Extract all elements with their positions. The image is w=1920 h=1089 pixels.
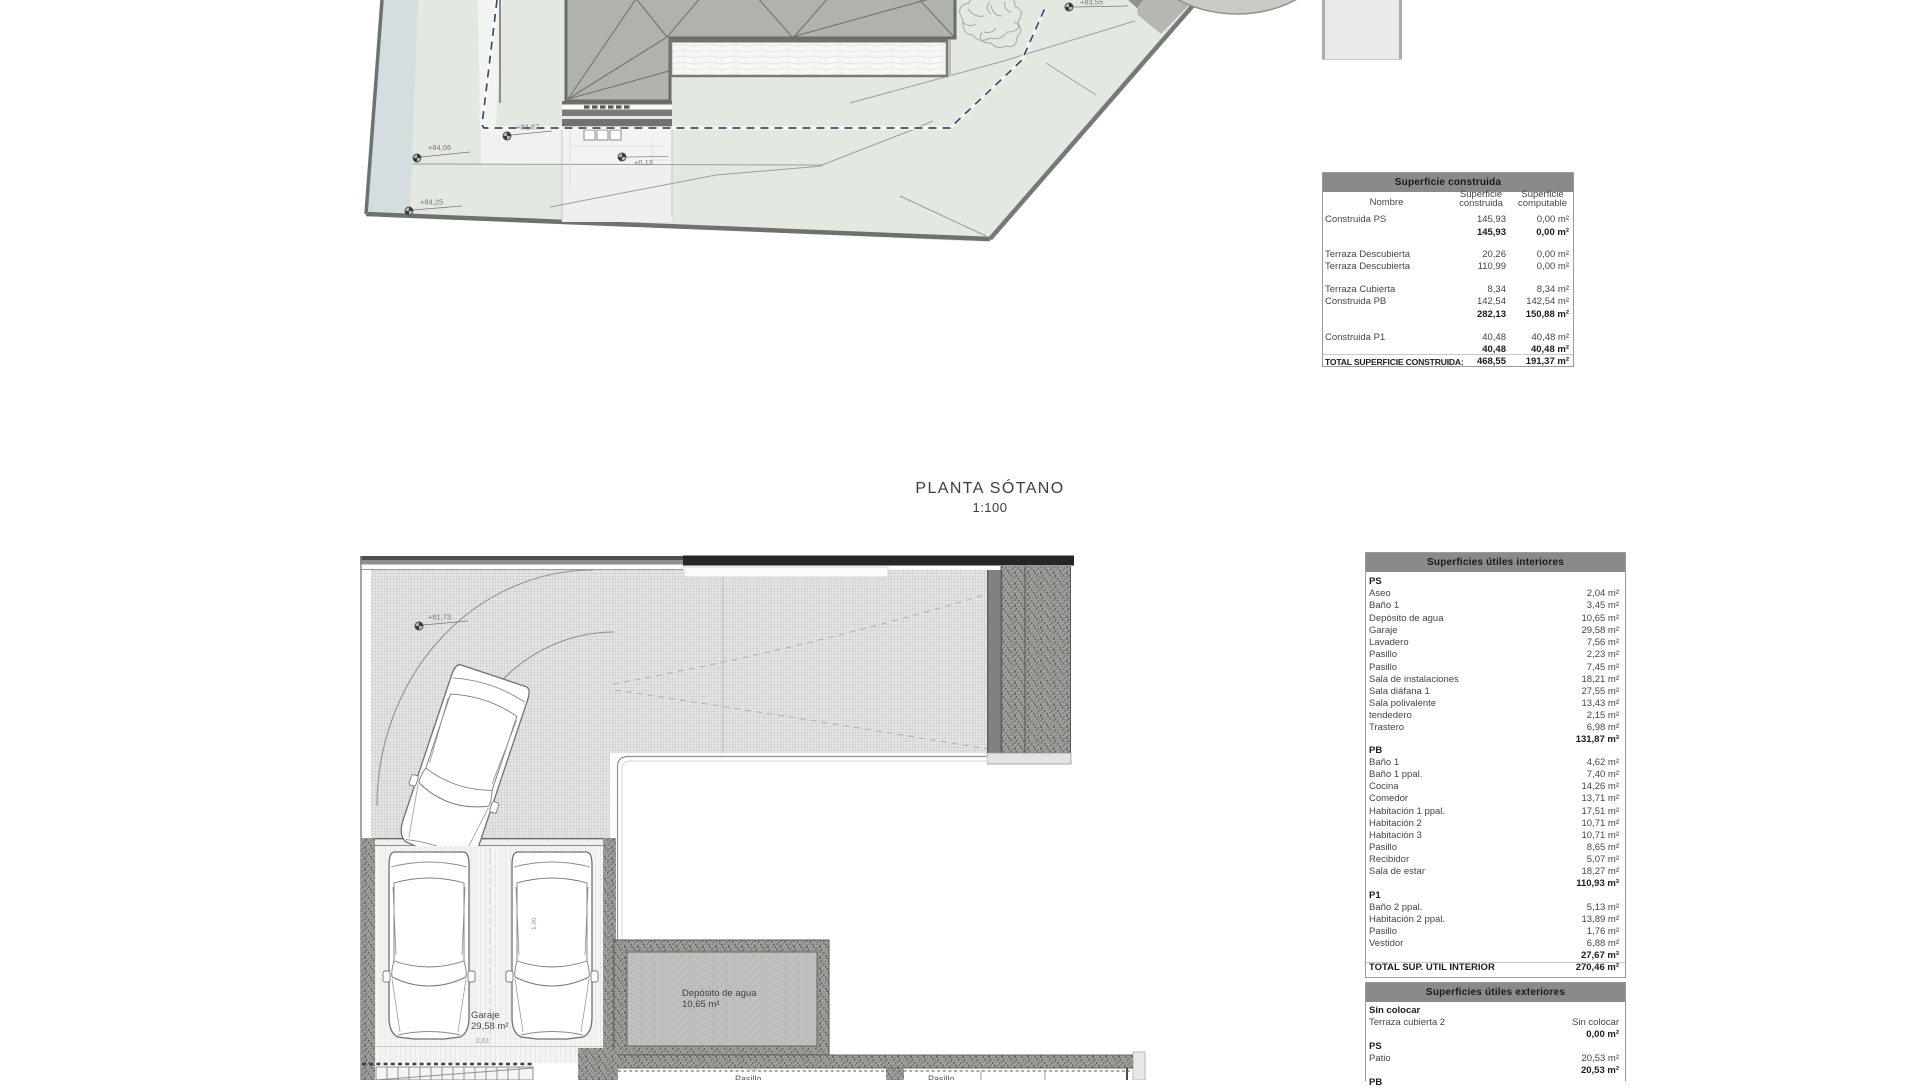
svg-text:+84,06: +84,06 <box>428 143 451 152</box>
svg-text:7,60: 7,60 <box>745 1065 758 1072</box>
svg-text:+81,73: +81,73 <box>428 613 451 622</box>
svg-text:+83,87: +83,87 <box>516 123 539 132</box>
svg-text:1,90: 1,90 <box>531 917 538 930</box>
svg-text:29,58 m²: 29,58 m² <box>471 1021 509 1032</box>
svg-text:10,65 m²: 10,65 m² <box>682 999 720 1010</box>
svg-text:Garaje: Garaje <box>471 1010 500 1021</box>
svg-text:+0,13: +0,13 <box>634 158 653 167</box>
svg-text:+83,55: +83,55 <box>1080 0 1103 7</box>
svg-text:Pasillo: Pasillo <box>735 1074 762 1080</box>
svg-text:+84,25: +84,25 <box>420 198 443 207</box>
svg-text:Depósito de agua: Depósito de agua <box>682 988 757 999</box>
svg-text:Pasillo: Pasillo <box>928 1074 955 1080</box>
svg-text:2,61: 2,61 <box>476 1038 490 1045</box>
